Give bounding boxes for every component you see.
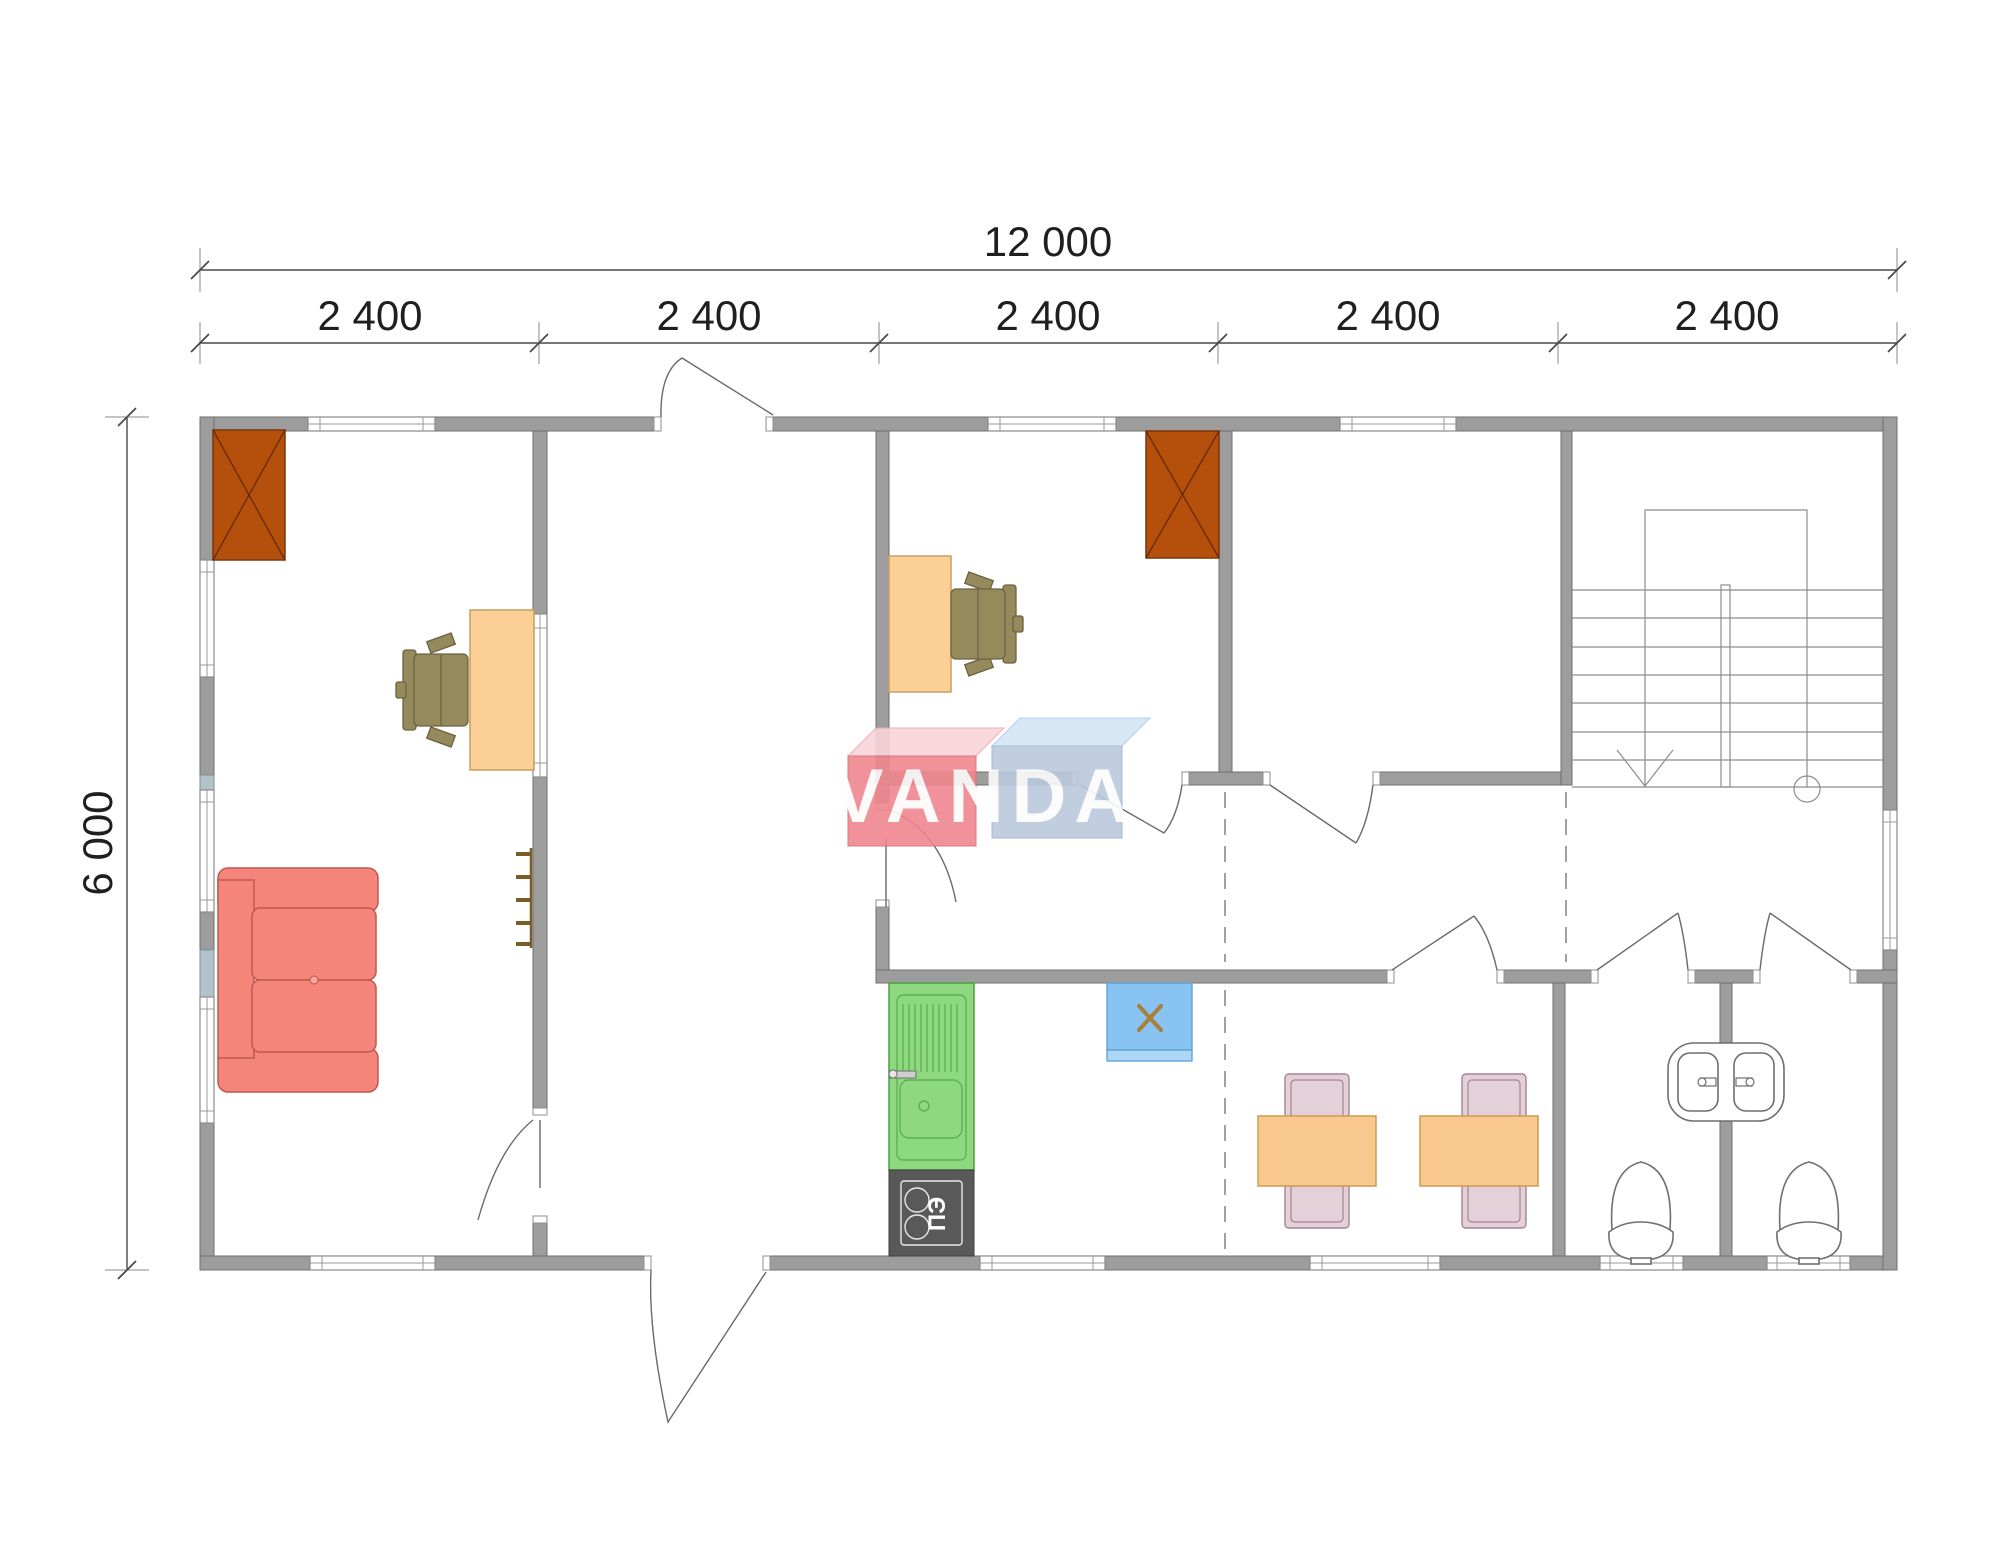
- window-icon: [533, 614, 547, 777]
- staircase: [1572, 510, 1883, 802]
- door-swing-icon: [661, 358, 773, 417]
- desk-icon: [396, 610, 534, 770]
- overall-height-label: 6 000: [74, 790, 121, 895]
- double-basin-icon: [1668, 1043, 1784, 1121]
- window-icon: [200, 560, 214, 677]
- upper-flight-outline: [1645, 510, 1807, 787]
- fireplace-icon: [213, 430, 285, 560]
- vanda-watermark: VANDA: [833, 718, 1150, 846]
- stair-handrail: [1721, 585, 1730, 787]
- exterior-windows: [200, 417, 1897, 1270]
- fridge-icon: [1107, 983, 1192, 1061]
- door-swing-icon: [1597, 913, 1688, 970]
- window-icon: [1310, 1256, 1440, 1270]
- segment-label-5: 2 400: [1674, 292, 1779, 339]
- door-swing-icon: [478, 1120, 540, 1220]
- faucet-icon: [889, 1070, 916, 1078]
- window-icon: [980, 1256, 1105, 1270]
- floor-plan-page: 12 000 2 400 2 400 2 400 2 400 2 400 6 0…: [0, 0, 2000, 1563]
- window-icon: [1883, 810, 1897, 950]
- fireplace-icon: [1146, 431, 1219, 558]
- door-swing-icon: [651, 1270, 766, 1422]
- kitchen-sink-unit-icon: [889, 983, 974, 1170]
- toilet-icon: [1609, 1162, 1673, 1264]
- faucet-icon: [1698, 1078, 1716, 1086]
- segment-label-4: 2 400: [1335, 292, 1440, 339]
- segment-label-1: 2 400: [317, 292, 422, 339]
- sofa-icon: [218, 868, 378, 1092]
- door-swing-icon: [1270, 785, 1373, 843]
- dining-chair-icon: [1285, 1184, 1349, 1228]
- segment-label-2: 2 400: [656, 292, 761, 339]
- stove-icon: ПЭ: [889, 1170, 974, 1256]
- toilet-icon: [1777, 1162, 1841, 1264]
- door-swing-icon: [1760, 913, 1851, 970]
- dining-chair-icon: [1285, 1074, 1349, 1118]
- dining-chair-icon: [1462, 1074, 1526, 1118]
- dining-chair-icon: [1462, 1184, 1526, 1228]
- window-icon: [310, 1256, 435, 1270]
- dining-table-icon: [1420, 1116, 1538, 1186]
- window-icon: [1340, 417, 1456, 431]
- office-chair-icon: [951, 572, 1023, 676]
- overall-width-label: 12 000: [984, 218, 1112, 265]
- dining-table-icon: [1258, 1116, 1376, 1186]
- desk-icon: [889, 556, 1023, 692]
- window-icon: [308, 417, 435, 431]
- window-icon: [988, 417, 1116, 431]
- stove-label: ПЭ: [924, 1197, 951, 1231]
- faucet-icon: [1736, 1078, 1754, 1086]
- window-icon: [200, 790, 214, 912]
- coat-hooks-icon: [516, 848, 531, 948]
- dimension-segments: 2 400 2 400 2 400 2 400 2 400: [191, 292, 1906, 364]
- door-swing-icon: [1392, 916, 1497, 970]
- exterior-walls: [200, 417, 1897, 1270]
- office-chair-icon: [396, 633, 468, 747]
- dimension-overall-width: 12 000: [191, 218, 1906, 292]
- dining-set: [1258, 1074, 1376, 1228]
- watermark-text: VANDA: [833, 754, 1138, 839]
- window-icon: [200, 997, 214, 1123]
- segment-label-3: 2 400: [995, 292, 1100, 339]
- dimension-overall-height: 6 000: [74, 408, 149, 1279]
- dining-set: [1420, 1074, 1538, 1228]
- floor-plan-canvas: 12 000 2 400 2 400 2 400 2 400 2 400 6 0…: [0, 0, 2000, 1563]
